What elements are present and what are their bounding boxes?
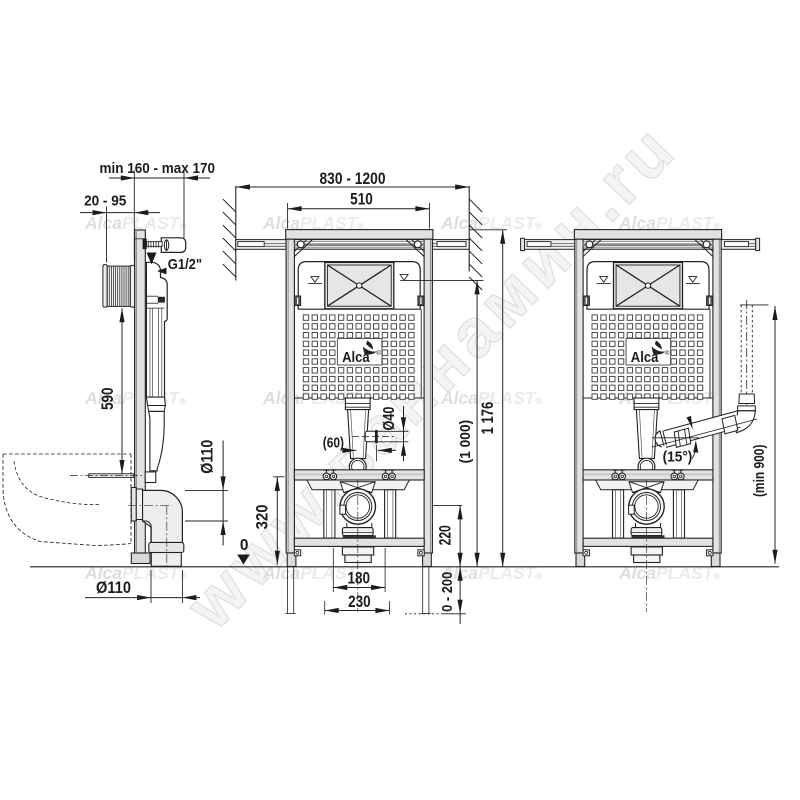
svg-text:Ø110: Ø110 (96, 578, 131, 597)
svg-text:Ø40: Ø40 (381, 406, 398, 430)
svg-text:0: 0 (240, 537, 249, 554)
svg-text:830 - 1200: 830 - 1200 (320, 169, 386, 188)
svg-text:G1/2": G1/2" (168, 256, 202, 273)
svg-text:(15°): (15°) (663, 449, 693, 466)
svg-text:®: ® (376, 349, 381, 357)
svg-text:590: 590 (98, 388, 117, 411)
svg-text:0 - 200: 0 - 200 (439, 572, 456, 612)
svg-text:180: 180 (348, 569, 371, 588)
svg-text:Ø110: Ø110 (197, 440, 216, 474)
svg-text:min 160 - max 170: min 160 - max 170 (100, 160, 216, 177)
svg-text:(min 900): (min 900) (751, 445, 768, 498)
svg-text:(60): (60) (323, 435, 344, 452)
svg-text:230: 230 (348, 592, 371, 611)
svg-text:220: 220 (436, 525, 455, 545)
svg-text:320: 320 (252, 504, 271, 529)
svg-text:510: 510 (350, 189, 373, 208)
svg-text:®: ® (665, 349, 670, 357)
svg-text:AlcaPLAST®: AlcaPLAST® (618, 563, 720, 583)
svg-text:(1 000): (1 000) (457, 420, 474, 464)
svg-text:1 176: 1 176 (478, 402, 497, 435)
svg-text:20 - 95: 20 - 95 (84, 193, 126, 210)
